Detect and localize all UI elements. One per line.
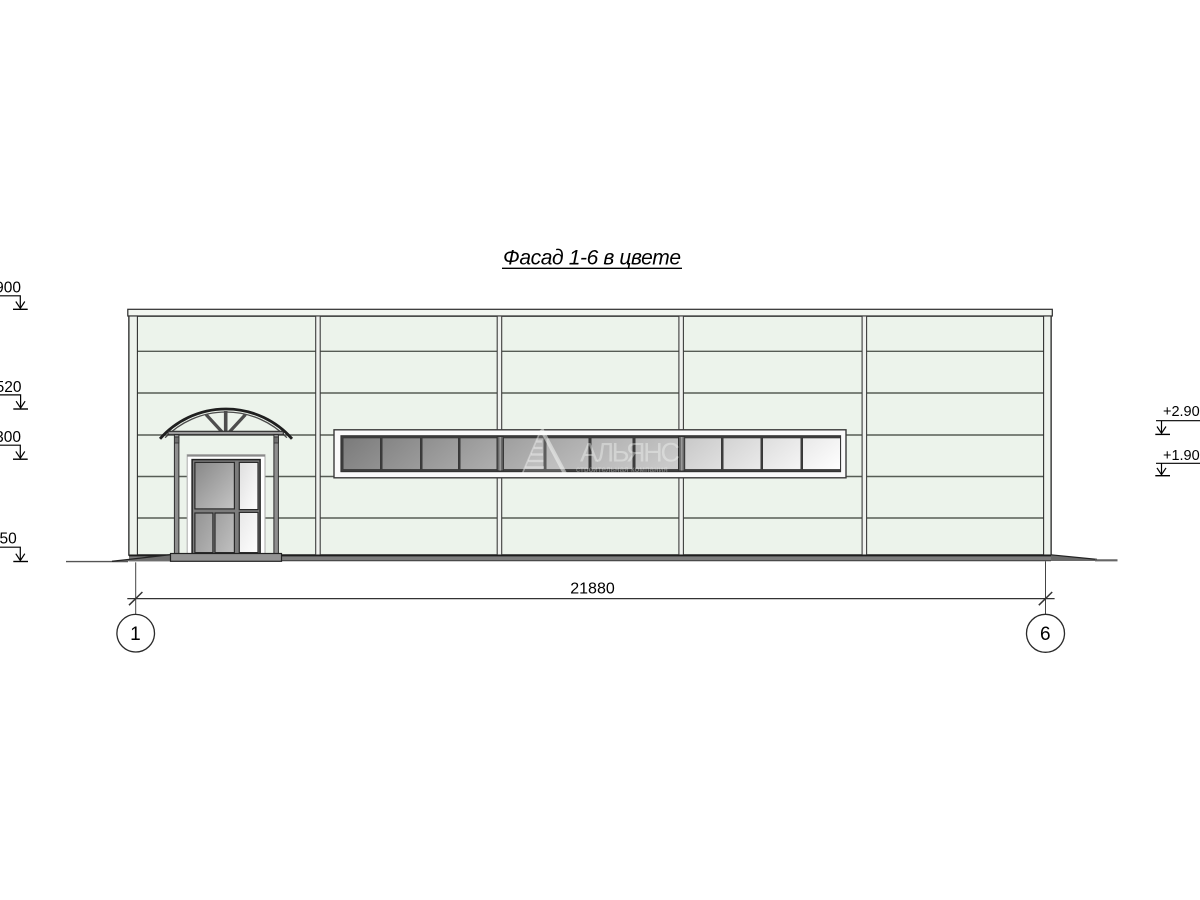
svg-text:6: 6: [1040, 624, 1051, 645]
svg-text:1: 1: [130, 624, 141, 645]
svg-text:520: 520: [0, 379, 22, 396]
svg-text:строительная компания: строительная компания: [576, 465, 668, 474]
svg-text:21880: 21880: [570, 581, 615, 598]
svg-text:АЛЬЯНС: АЛЬЯНС: [580, 437, 680, 467]
svg-text:900: 900: [0, 279, 21, 296]
svg-text:+2.90: +2.90: [1163, 404, 1200, 420]
svg-text:Фасад 1-6 в цвете: Фасад 1-6 в цвете: [503, 247, 681, 270]
svg-text:+1.90: +1.90: [1163, 448, 1200, 464]
svg-text:300: 300: [0, 429, 21, 446]
svg-text:50: 50: [0, 531, 17, 548]
